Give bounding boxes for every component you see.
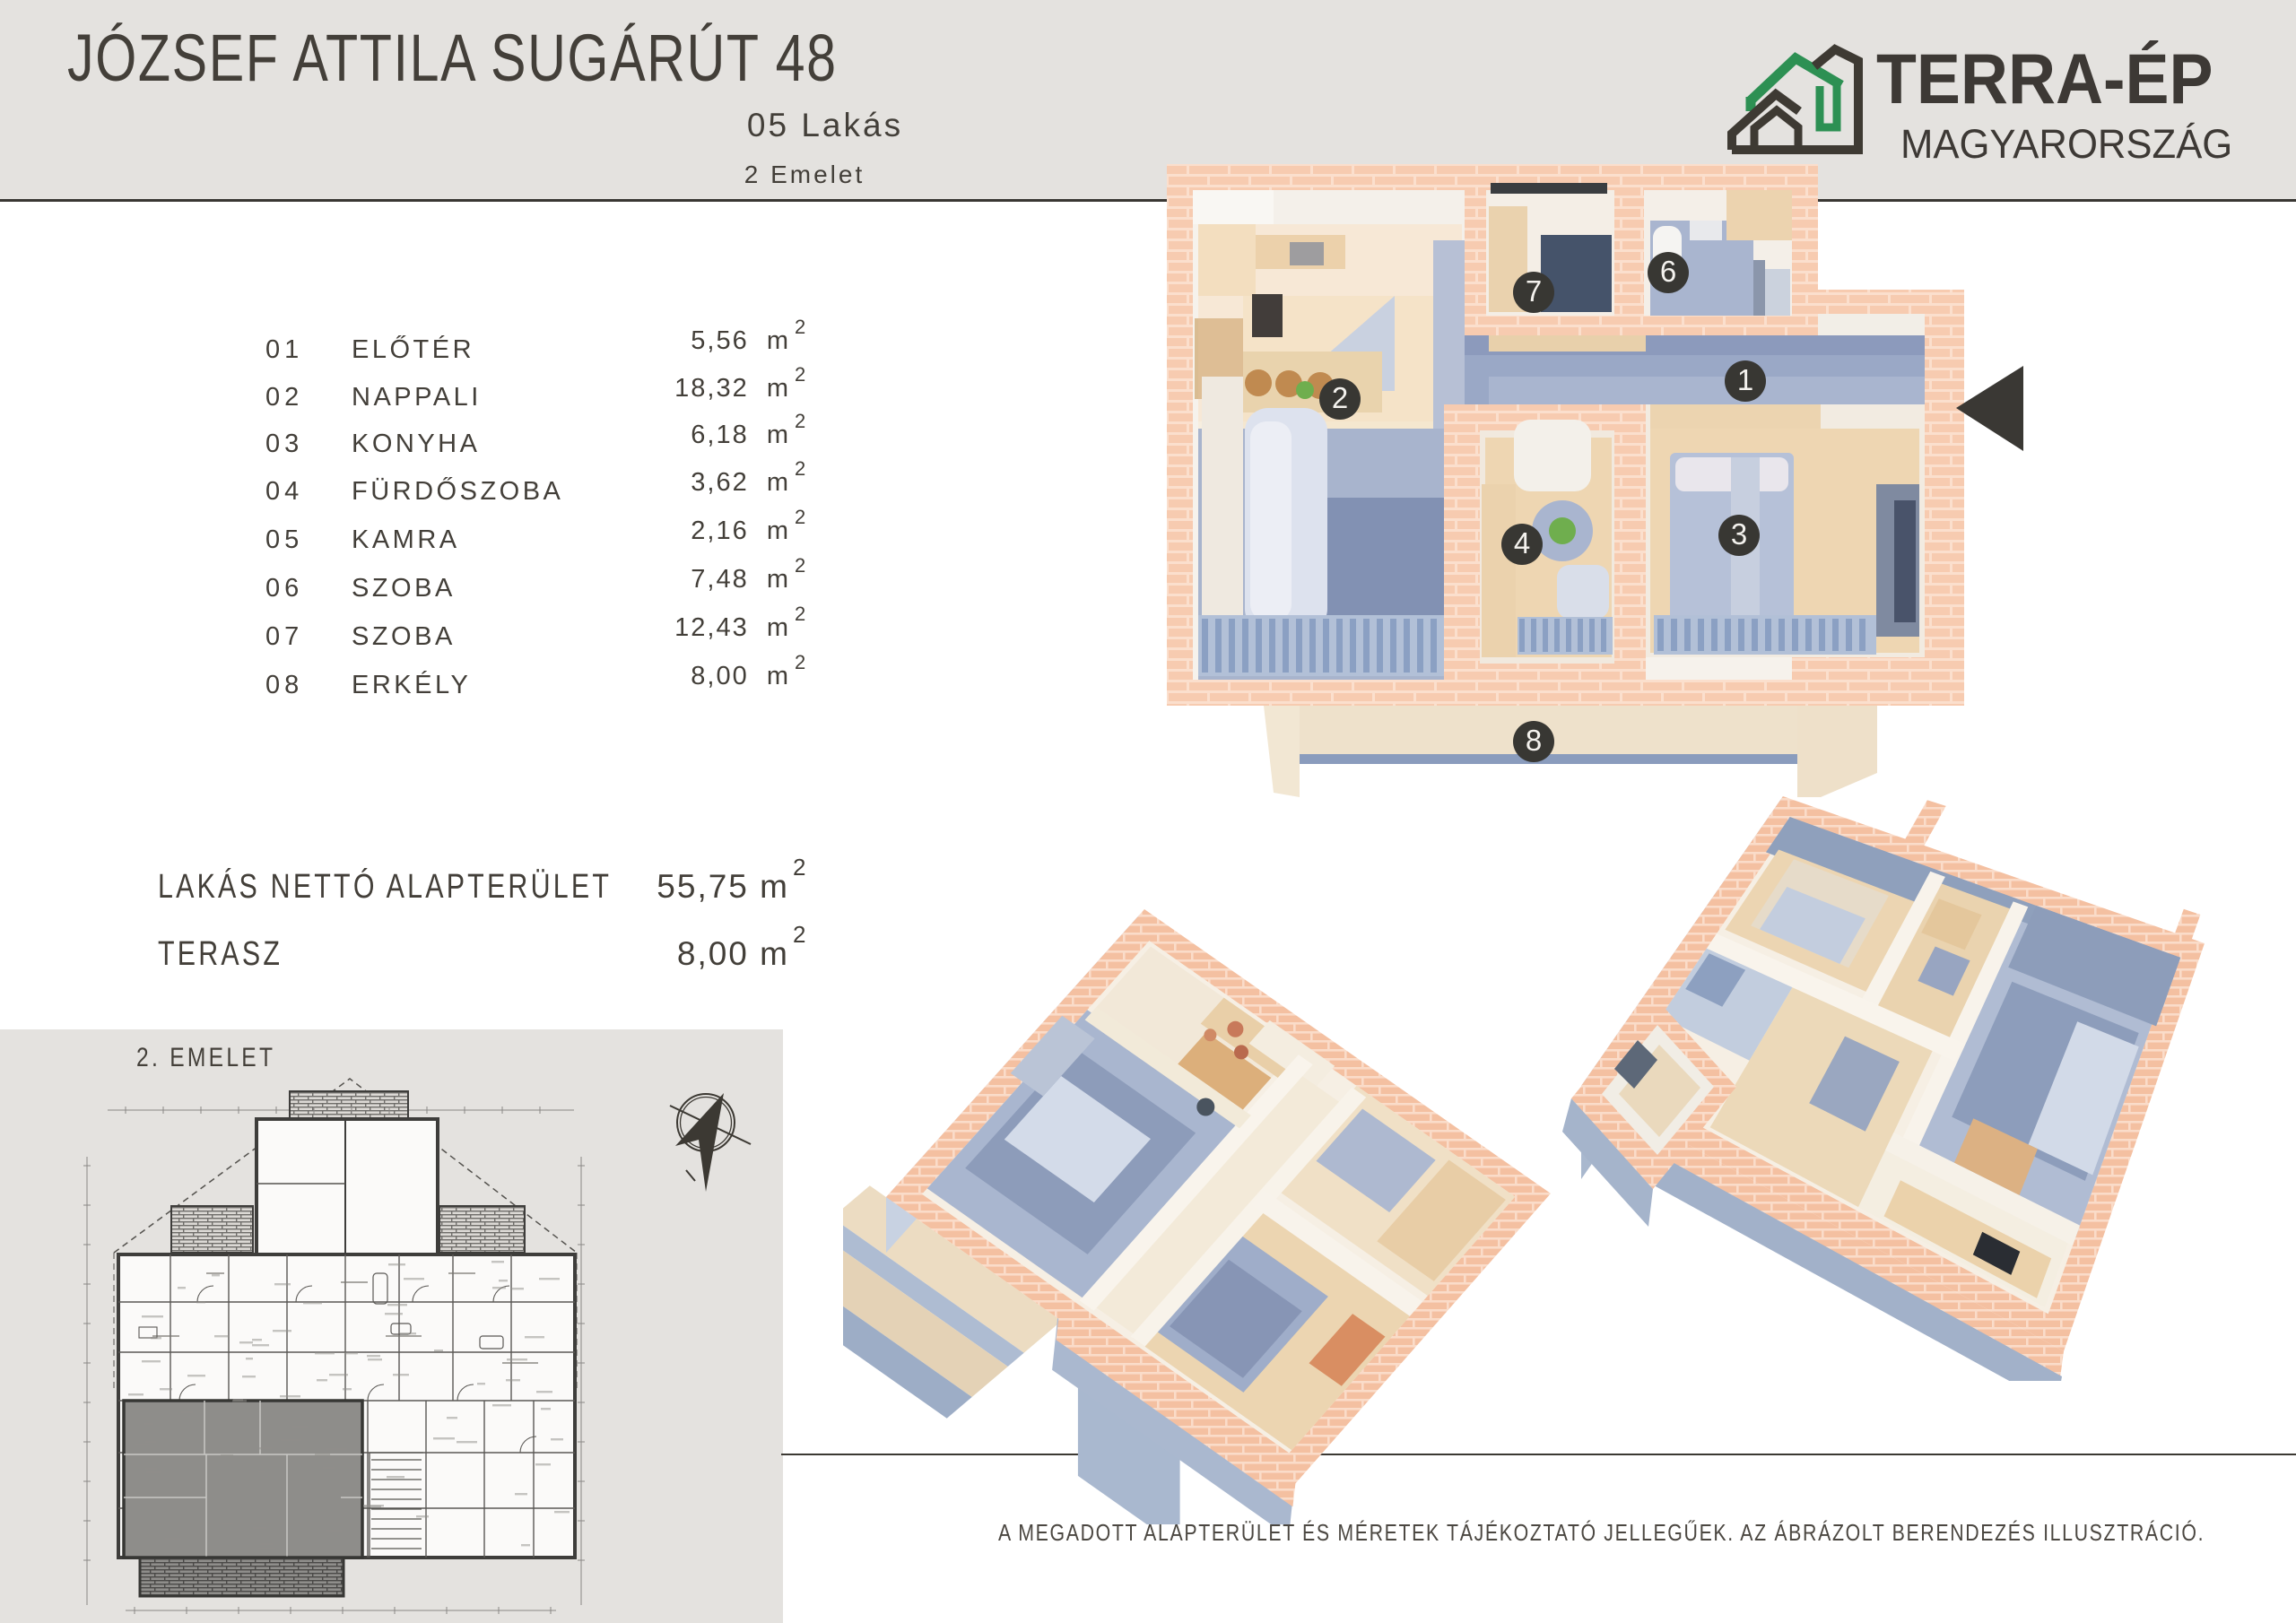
svg-text:2: 2 <box>1332 381 1348 414</box>
svg-text:1: 1 <box>1737 363 1753 396</box>
svg-text:8: 8 <box>1526 724 1542 757</box>
svg-text:3: 3 <box>1731 517 1747 551</box>
svg-text:7: 7 <box>1526 274 1542 308</box>
svg-text:6: 6 <box>1660 255 1676 288</box>
svg-text:4: 4 <box>1514 526 1530 560</box>
